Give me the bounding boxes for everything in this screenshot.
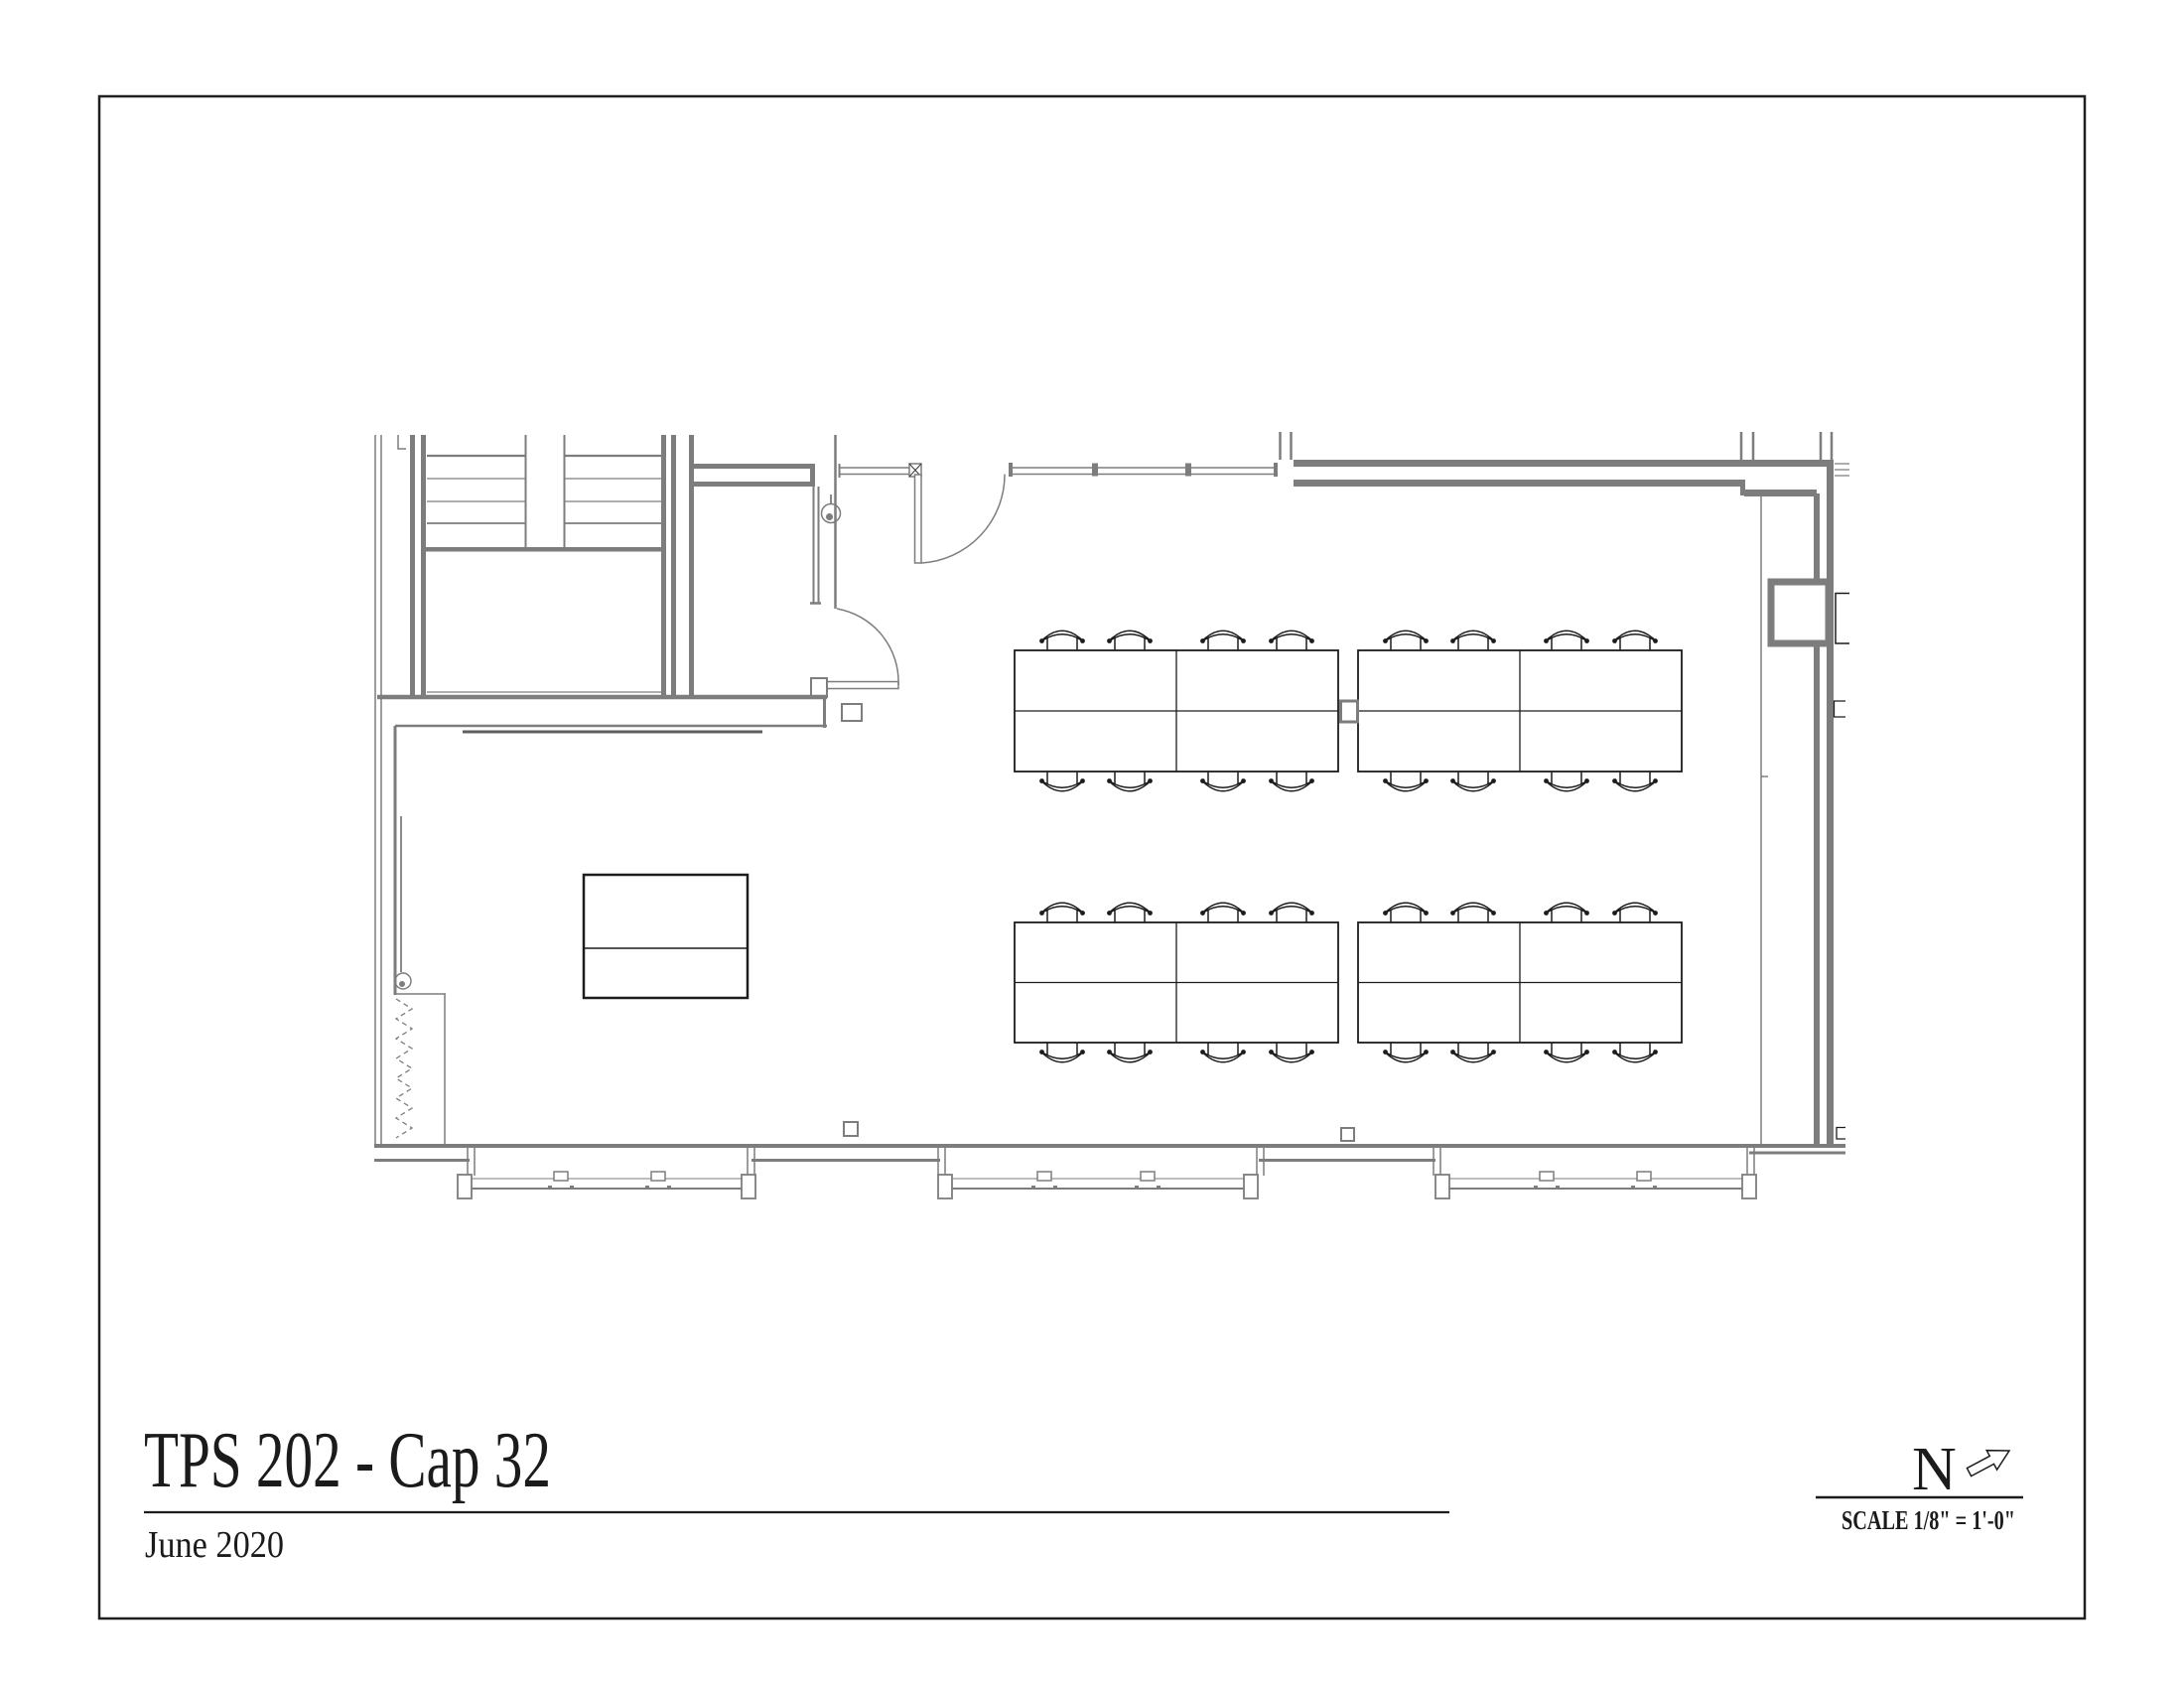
door-hardware-icon	[822, 494, 841, 523]
stair-landing-edge	[425, 547, 663, 552]
chair-icon	[1039, 1043, 1085, 1062]
chair-icon	[1612, 903, 1658, 922]
chair-icon	[1200, 1043, 1246, 1062]
chair-icon	[1107, 772, 1153, 791]
north-arrow-icon	[1967, 1451, 2009, 1477]
vestibule-north-wall-inner	[694, 482, 815, 487]
drawing-sheet: TPS 202 - Cap 32 June 2020 N SCALE 1/8" …	[0, 0, 2184, 1688]
north-entry-door	[915, 475, 1006, 564]
chair-icon	[1383, 631, 1429, 650]
stair-east-wall	[661, 435, 666, 697]
north-wall	[840, 432, 1850, 563]
chair-icon	[1107, 631, 1153, 650]
stair-east-wall-2	[671, 435, 676, 697]
chair-icon	[1269, 1043, 1314, 1062]
table-group-lower-left	[1015, 922, 1338, 1043]
north-scale-block: N SCALE 1/8" = 1'-0"	[1816, 1436, 2023, 1535]
chair-icon	[1107, 903, 1153, 922]
stair-west-wall-2	[421, 435, 426, 697]
chair-icon	[1544, 903, 1589, 922]
chair-icon	[1544, 772, 1589, 791]
table-group-lower-right	[1358, 922, 1682, 1043]
east-wall	[1761, 467, 1849, 1148]
east-wall-outer	[1827, 467, 1834, 1148]
chair-icon	[1039, 631, 1085, 650]
door-swing-arc	[921, 475, 1005, 564]
stair-west-wall	[410, 435, 415, 697]
chair-icon	[1612, 631, 1658, 650]
wall-box	[842, 704, 862, 721]
chair-icon	[1544, 631, 1589, 650]
instructor-table	[584, 875, 748, 998]
door-jamb-block	[811, 678, 827, 697]
chair-icon	[1107, 1043, 1153, 1062]
stair-treads-left	[427, 456, 525, 523]
stairwell	[375, 435, 676, 1146]
exterior-bracket-small	[1835, 701, 1846, 717]
chair-icon	[1544, 1043, 1589, 1062]
table-connector	[1341, 701, 1358, 722]
east-wall-inner-upper	[1814, 493, 1820, 581]
chair-icon	[1383, 903, 1429, 922]
landing-wall	[377, 695, 827, 732]
vestibule-wall-endcap	[810, 464, 815, 487]
chair-icon	[1269, 772, 1314, 791]
wall-hook-mark	[398, 435, 406, 449]
window-mullion	[1185, 464, 1191, 477]
wall-alcove-box	[1771, 582, 1829, 643]
floor-box	[1341, 1128, 1354, 1141]
south-wall	[374, 1122, 1845, 1198]
chair-icon	[1039, 772, 1085, 791]
chair-icon	[1450, 772, 1496, 791]
stair-treads-right	[565, 456, 661, 523]
chair-icon	[1612, 772, 1658, 791]
wall-stubs	[1281, 432, 1833, 460]
chair-icon	[1450, 1043, 1496, 1062]
chair-icon	[1612, 1043, 1658, 1062]
chair-icon	[1200, 903, 1246, 922]
exterior-bracket-corner	[1837, 1128, 1845, 1140]
west-wall-lower	[395, 726, 446, 1144]
north-wall-inner	[1294, 480, 1741, 487]
door-leaf	[915, 475, 922, 563]
north-wall-outer	[1294, 460, 1834, 467]
page-title: TPS 202 - Cap 32	[144, 1417, 551, 1504]
window-mullions	[548, 1172, 1657, 1190]
classroom-west-wall	[689, 435, 694, 697]
window-mullion	[1092, 464, 1098, 477]
window-endcap	[1274, 463, 1278, 477]
chair-icon	[1450, 903, 1496, 922]
wall-fixture-icon	[395, 816, 411, 989]
chair-icon	[1269, 631, 1314, 650]
chair-icon	[1383, 772, 1429, 791]
door-leaf	[827, 682, 898, 689]
door-swing-arc	[837, 609, 898, 685]
hatched-chase	[395, 994, 446, 1144]
floor-box	[844, 1122, 858, 1136]
title-block: TPS 202 - Cap 32 June 2020	[144, 1417, 1449, 1566]
chair-icon	[1450, 631, 1496, 650]
vestibule	[689, 435, 898, 721]
table-group-upper-right	[1358, 650, 1682, 772]
vestibule-north-wall	[694, 464, 815, 469]
chair-icon	[1200, 772, 1246, 791]
date-label: June 2020	[145, 1524, 284, 1566]
table-group-upper-left	[1015, 650, 1338, 772]
wall-continuation-ticks	[1835, 464, 1849, 476]
sheet-border	[99, 96, 2085, 1618]
north-wall-inner-low	[1744, 490, 1817, 496]
scale-label: SCALE 1/8" = 1'-0"	[1842, 1505, 2015, 1535]
chair-icon	[1039, 903, 1085, 922]
chair-icon	[1200, 631, 1246, 650]
exterior-bracket	[1836, 594, 1849, 644]
chair-icon	[1269, 903, 1314, 922]
chair-icon	[1383, 1043, 1429, 1062]
window-endcap	[1009, 463, 1013, 477]
east-wall-inner-lower	[1814, 645, 1820, 1148]
north-label: N	[1912, 1436, 1957, 1503]
insulation-hatch	[396, 999, 412, 1138]
